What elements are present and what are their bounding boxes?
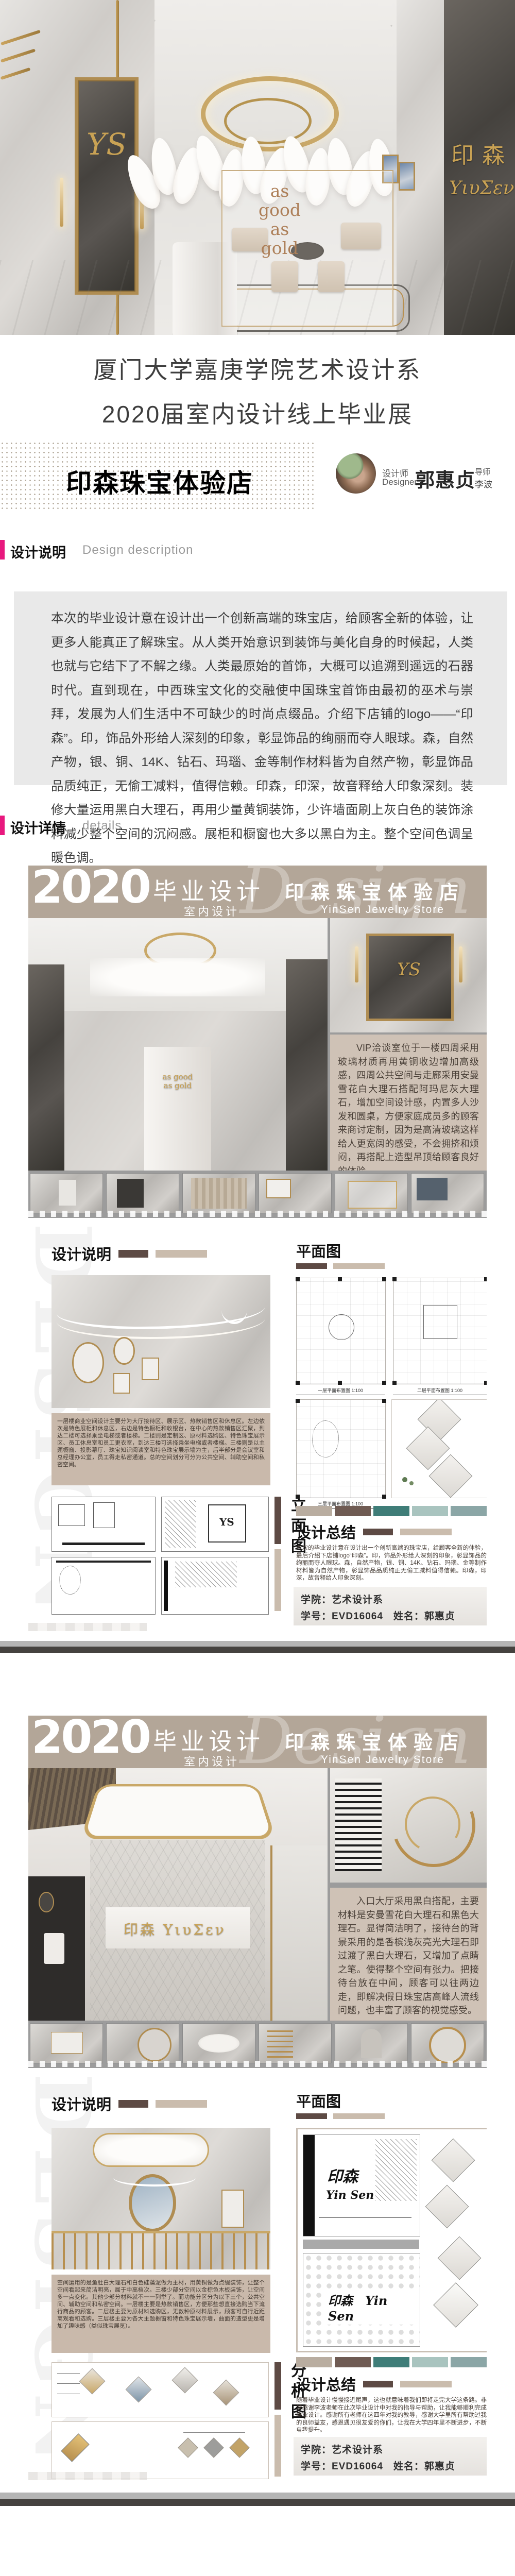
poster2-mirror-room-render [51,2128,270,2269]
render-thumbnail [335,2024,407,2063]
poster1-left-textbox: 一层楼商业空间设计主要分为大厅接待区、展示区、热款销售区和休息区。左边依次是特色… [51,1413,270,1485]
student-id-line: 学号：EVD16064 姓名：郭惠贞 [301,1608,455,1622]
render-thumbnail [335,1174,407,1213]
render-thumbnail [107,1174,179,1213]
heading-swatch-dark [296,1263,327,1269]
elevation-drawing [51,1497,156,1552]
poster2-drawing-frame: 印森 Yin Sen 印森 Yin Sen [296,2128,487,2352]
heading-design-notes: 设计说明 [51,1243,111,1264]
heading-floor-plan: 平面图 [296,2090,341,2111]
designer-avatar [336,453,376,494]
poster1-main-render: as good as gold [28,918,328,1171]
school-line: 学院：艺术设计系 [301,2442,383,2456]
render-thumbnail [107,2024,179,2063]
heading-swatch-beige [333,1263,385,1269]
design-description-box: 本次的毕业设计意在设计出一个创新高端的珠宝店，给顾客全新的体验，让更多人能真正了… [14,591,507,785]
film-deco-strip [28,2472,147,2480]
store-logo-cn: 印森 [451,137,513,170]
poster-store-cn: 印森珠宝体验店 [285,877,487,905]
poster-year: 2020 [31,866,149,913]
poster-board-1: Design 2020 毕业设计 室内设计 印森珠宝体验店 YinSen Jew… [28,866,487,1637]
section-title-details-en: details [82,819,122,833]
heading-swatch-dark [363,2381,393,2387]
poster1-vip-textbox: VIP洽谈室位于一楼四周采用玻璃材质再用黄铜收边增加高级感，四周公共空间与走廊采… [330,1035,487,1171]
logo-cn-drawing2: 印森 Yin Sen [324,2290,420,2325]
render-thumbnail [259,1174,331,1213]
heading-swatch-dark [118,1250,148,1258]
heading-swatch-dark [296,2113,327,2119]
advisor-name: 李波 [475,477,492,490]
school-line: 学院：艺术设计系 [301,1592,383,1606]
section-accent-bar [0,816,5,835]
poster1-vip-text: VIP洽谈室位于一楼四周采用玻璃材质再用黄铜收边增加高级感，四周公共空间与走廊采… [330,1035,487,1184]
poster1-render-area: as good as gold YS VIP洽谈室位于一楼四周采用玻璃材质再用黄… [28,918,487,1171]
heading-swatch-dark [363,1529,393,1535]
axonometric-diagram [424,2134,483,2346]
poster2-left-textbox: 空间运用的是鱼肚白大理石和白色硅藻泥做为主材，用黄铜做为点缀装饰，让整个空间看起… [51,2275,270,2353]
material-color-palette [296,2357,487,2367]
heading-design-notes: 设计说明 [51,2093,111,2114]
poster-store-en: YinSen Jewelry Store [321,904,444,916]
poster2-render-area: 印森 ΥιυΣεν 入口大厅采用黑白搭配，主要材料是安曼雪花白大理石和黑色大理石… [28,1768,487,2021]
reception-logo: 印森 ΥιυΣεν [124,1919,226,1939]
poster2-filmstrip [28,2021,487,2068]
poster2-header: Design 2020 毕业设计 室内设计 印森珠宝体验店 YinSen Jew… [28,1716,487,1768]
poster2-intro-textbox: 入口大厅采用黑白搭配，主要材料是安曼雪花白大理石和黑色大理石。显得简洁明了，接待… [330,1888,487,2021]
poster2-reception-render: 印森 ΥιυΣεν [28,1768,328,2021]
poster2-content: DESIGN 设计说明 空间运用的是鱼肚白大理石和白色硅藻泥做为主材，用黄铜做为… [28,2068,487,2486]
poster-board-2: Design 2020 毕业设计 室内设计 印森珠宝体验店 YinSen Jew… [28,1716,487,2486]
heading-summary: 设计总结 [296,1521,356,1543]
hex-pattern-drawing: 印森 Yin Sen [303,2253,420,2347]
heading-swatch-beige [156,1250,207,1258]
poster2-intro-text: 入口大厅采用黑白搭配，主要材料是安曼雪花白大理石和黑色大理石。显得简洁明了，接待… [330,1888,487,2024]
poster-grad-title: 毕业设计 [153,873,264,907]
poster1-left-body: 一层楼商业空间设计主要分为大厅接待区、展示区、热款销售区和休息区。左边依次是特色… [51,1413,270,1473]
poster2-left-body: 空间运用的是鱼肚白大理石和白色硅藻泥做为主材，用黄铜做为点缀装饰，让整个空间看起… [51,2275,270,2334]
poster1-id-block: 学院：艺术设计系 学号：EVD16064 姓名：郭惠贞 [294,1587,487,1625]
render-thumbnail [30,2024,102,2063]
poster-field: 室内设计 [184,1753,239,1768]
poster2-staircase-render [330,1768,487,1883]
logo-elevation-drawing: 印森 Yin Sen [303,2134,420,2236]
film-sprockets [28,2061,487,2067]
poster2-summary-heading-row: 设计总结 [296,2373,452,2395]
store-logo-greek: ΥιυΣεν [449,178,514,199]
render-thumbnail [183,2024,255,2063]
heading-summary: 设计总结 [296,2373,356,2395]
poster1-left-heading-row: 设计说明 [51,1243,207,1264]
elevation-drawing [51,1557,156,1615]
poster1-summary-heading-row: 设计总结 [296,1521,452,1543]
heading-floor-plan: 平面图 [296,1240,341,1261]
heading-swatch-beige [400,2381,452,2387]
heading-swatch-dark [118,2100,148,2108]
exhibition-title-line2: 2020届室内设计线上毕业展 [0,396,515,430]
advisor-label: 导师 [475,466,490,477]
poster-field: 室内设计 [184,903,239,918]
ys-monogram: YS [78,127,135,162]
section-title-details-cn: 设计详情 [10,817,66,837]
poster1-content: DESIGN 设计说明 一层楼商业空间设计主要分为大厅接待区、展示区、热款销售区… [28,1218,487,1637]
designer-label-en: Designer [382,477,417,487]
film-deco-strip [28,1623,147,1631]
poster-store-cn: 印森珠宝体验店 [285,1727,487,1755]
poster1-vip-render: YS [330,918,487,1032]
render-thumbnail [259,2024,331,2063]
hero-interior-render: YS 印森 ΥιυΣεν as good as [0,0,515,335]
student-id-line: 学号：EVD16064 姓名：郭惠贞 [301,2459,455,2472]
heading-swatch-beige [156,2100,207,2108]
logo-en-drawing: Yin Sen [326,2189,374,2202]
poster-year: 2020 [31,1716,149,1764]
material-board-diagram [51,2421,269,2479]
poster-store-en: YinSen Jewelry Store [321,1754,444,1766]
plan-caption-1: 一层平面布置图 1:100 [296,1387,385,1395]
poster1-filmstrip [28,1171,487,1218]
divider-dark [0,1647,515,1653]
poster2-left-heading-row: 设计说明 [51,2093,207,2114]
divider-light [0,1641,515,1647]
section-title-description-cn: 设计说明 [10,541,66,562]
heading-swatch-beige [400,1529,452,1535]
exhibition-title-line1: 厦门大学嘉庚学院艺术设计系 [0,351,515,385]
page: YS 印森 ΥιυΣεν as good as [0,0,515,2576]
drawing-gray-bar [303,2240,419,2249]
floor-plan-1 [296,1278,386,1384]
render-thumbnail [30,1174,102,1213]
material-color-palette [296,1506,487,1516]
section-title-description-en: Design description [82,543,193,557]
elevation-drawing [161,1557,269,1615]
render-thumbnail [183,1174,255,1213]
elevation-drawing: YS [161,1497,269,1552]
poster1-summary-text: 本次的毕业设计意在设计出一个创新高端的珠宝店，给顾客全新的体验，最后介绍下店铺l… [296,1545,487,1582]
divider-dark [0,2499,515,2506]
axonometric-diagram [391,1399,487,1498]
floor-plan-2 [393,1278,487,1384]
project-title: 印森珠宝体验店 [66,463,253,500]
poster2-summary-text: 随着毕业设计慢慢接近尾声，这也就意味着我们即将走完大学这条路。非常感谢李波老师在… [296,2397,487,2434]
poster1-display-wall-render [51,1275,270,1408]
poster-grad-title: 毕业设计 [153,1723,264,1757]
wall-sconce-light [60,178,63,227]
heading-swatch-beige [333,2113,385,2119]
poster1-header: Design 2020 毕业设计 室内设计 印森珠宝体验店 YinSen Jew… [28,866,487,918]
render-thumbnail [411,1174,484,1213]
film-sprockets [28,1211,487,1217]
render-thumbnail [411,2024,484,2063]
designer-name: 郭惠贞 [415,464,475,493]
section-accent-bar [0,540,5,560]
poster2-id-block: 学院：艺术设计系 学号：EVD16064 姓名：郭惠贞 [294,2437,487,2476]
logo-cn-drawing: 印森 [327,2164,358,2187]
plan-caption-2: 二层平面布置图 1:100 [393,1387,487,1395]
material-analysis-diagram [51,2362,269,2417]
floor-plan-3 [296,1399,386,1498]
as-good-as-gold-text: as good as gold [246,181,313,258]
divider-light [0,2493,515,2499]
